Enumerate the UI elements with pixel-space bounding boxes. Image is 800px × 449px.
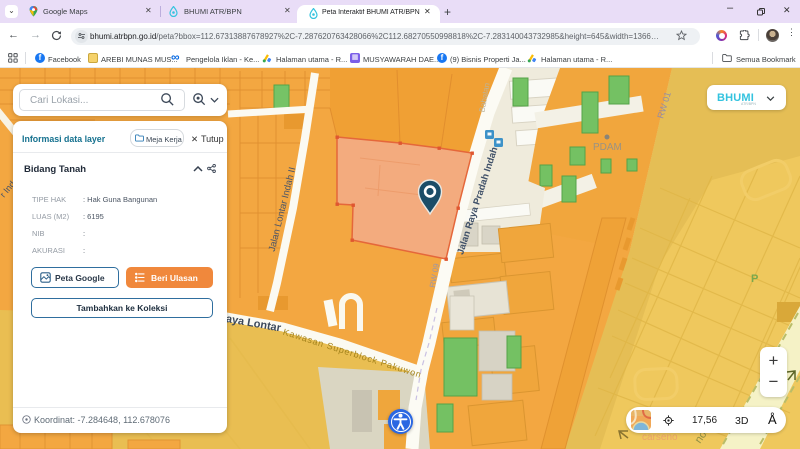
svg-text:PDAM: PDAM	[593, 142, 622, 153]
svg-text:P: P	[751, 273, 758, 285]
svg-text:carseno: carseno	[642, 432, 678, 443]
